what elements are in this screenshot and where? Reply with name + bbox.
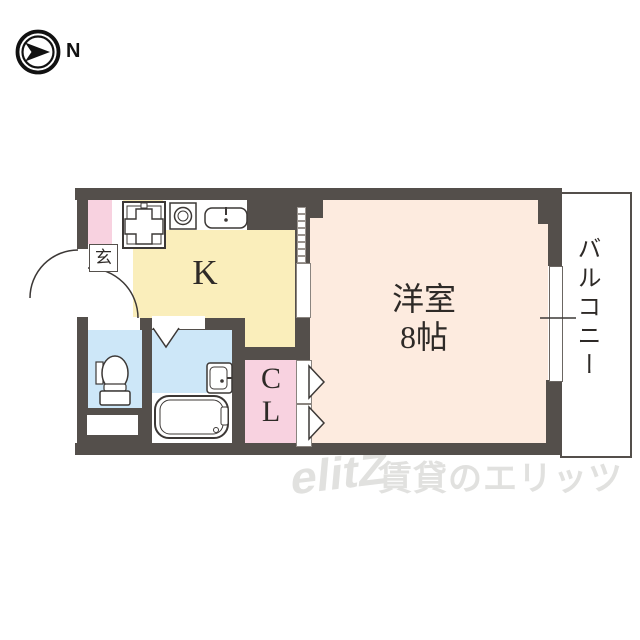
bath-folding-door-icon — [153, 328, 179, 347]
bathtub-icon — [155, 396, 228, 438]
balcony-label: バルコニー — [572, 236, 600, 426]
fixture-drawings — [0, 0, 640, 640]
entrance-door-arc-inner — [88, 268, 138, 318]
bath-sink-icon — [207, 363, 232, 393]
washing-machine-icon — [170, 203, 196, 229]
closet-label: C L — [245, 362, 297, 428]
western-room-label: 洋室 8帖 — [344, 281, 504, 357]
closet-door-chevron-lower — [309, 407, 324, 439]
closet-door-chevron-upper — [309, 366, 324, 398]
stove-icon — [123, 202, 165, 248]
entrance-door-arc-outer — [30, 250, 78, 298]
toilet-icon — [96, 356, 130, 405]
kitchen-sink-icon — [205, 207, 247, 228]
kitchen-label: K — [170, 252, 240, 293]
entrance-label: 玄 — [89, 244, 118, 272]
floorplan-canvas: elitZ 賃貸のエリッツ N — [0, 0, 640, 640]
